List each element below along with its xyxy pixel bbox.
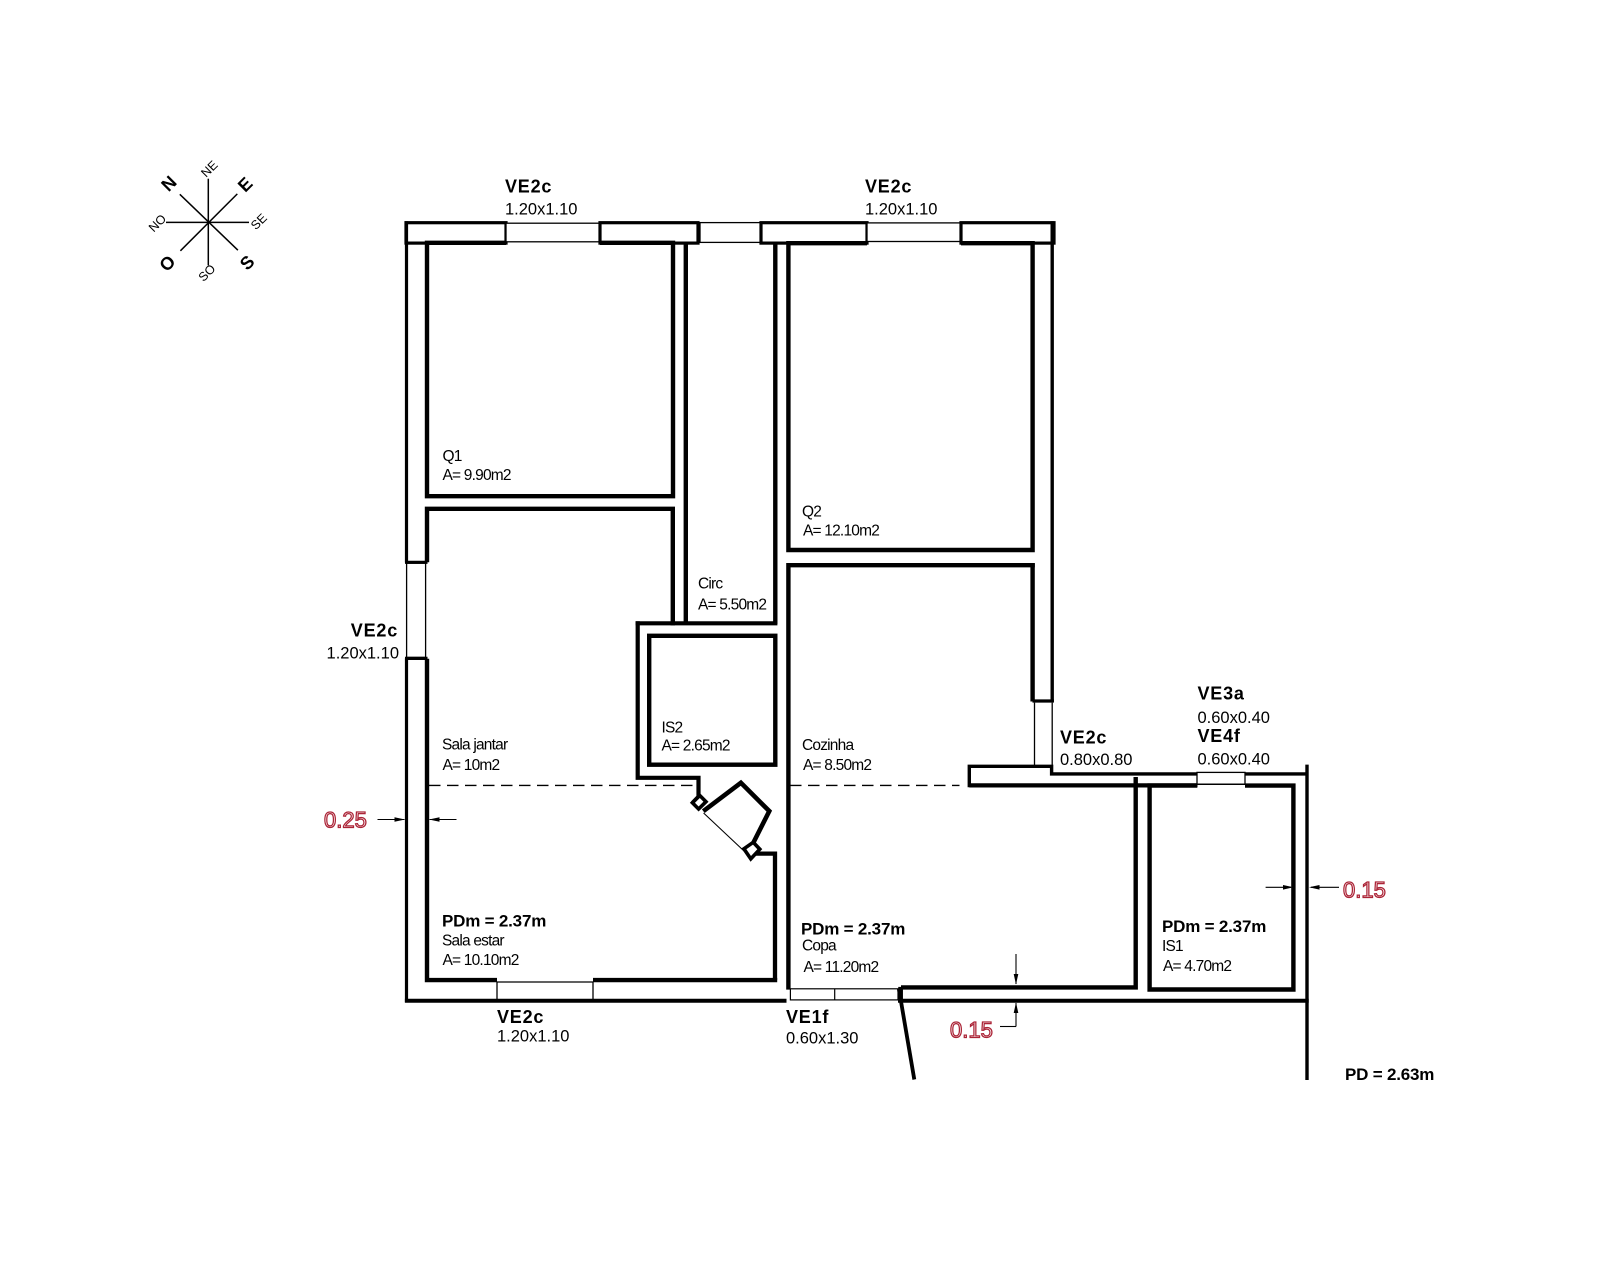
svg-text:0.60x0.40: 0.60x0.40 xyxy=(1198,751,1270,769)
svg-text:VE2c: VE2c xyxy=(497,1007,544,1027)
svg-text:0.25: 0.25 xyxy=(324,808,367,833)
svg-text:VE2c: VE2c xyxy=(1060,728,1107,748)
svg-text:PDm = 2.37m: PDm = 2.37m xyxy=(1162,917,1266,936)
svg-text:1.20x1.10: 1.20x1.10 xyxy=(865,201,937,219)
svg-text:A= 2.65m2: A= 2.65m2 xyxy=(662,738,730,755)
svg-text:A= 10m2: A= 10m2 xyxy=(443,757,500,774)
svg-text:IS1: IS1 xyxy=(1162,938,1183,955)
svg-text:VE2c: VE2c xyxy=(865,176,912,196)
svg-text:A= 9.90m2: A= 9.90m2 xyxy=(443,467,511,484)
svg-text:Q2: Q2 xyxy=(802,504,821,521)
svg-text:PD = 2.63m: PD = 2.63m xyxy=(1345,1065,1434,1084)
svg-text:VE3a: VE3a xyxy=(1198,684,1245,704)
svg-text:A= 11.20m2: A= 11.20m2 xyxy=(804,959,879,976)
svg-text:1.20x1.10: 1.20x1.10 xyxy=(327,644,399,662)
svg-text:VE4f: VE4f xyxy=(1198,726,1241,746)
svg-text:1.20x1.10: 1.20x1.10 xyxy=(497,1028,569,1046)
svg-text:Q1: Q1 xyxy=(443,448,462,465)
svg-text:VE2c: VE2c xyxy=(351,621,398,641)
svg-text:Copa: Copa xyxy=(802,938,837,955)
svg-text:IS2: IS2 xyxy=(662,720,683,737)
svg-text:Sala estar: Sala estar xyxy=(442,933,504,950)
svg-text:0.15: 0.15 xyxy=(1343,878,1386,903)
svg-text:A= 8.50m2: A= 8.50m2 xyxy=(803,757,871,774)
svg-text:0.15: 0.15 xyxy=(950,1018,993,1043)
svg-text:VE1f: VE1f xyxy=(786,1007,829,1027)
svg-text:A= 10.10m2: A= 10.10m2 xyxy=(443,952,519,969)
svg-text:Cozinha: Cozinha xyxy=(802,737,854,754)
svg-text:PDm = 2.37m: PDm = 2.37m xyxy=(442,912,546,931)
svg-text:0.80x0.80: 0.80x0.80 xyxy=(1060,751,1132,769)
svg-text:0.60x0.40: 0.60x0.40 xyxy=(1198,709,1270,727)
svg-text:A= 5.50m2: A= 5.50m2 xyxy=(698,596,766,613)
svg-text:A= 12.10m2: A= 12.10m2 xyxy=(803,523,879,540)
svg-text:PDm = 2.37m: PDm = 2.37m xyxy=(801,920,905,939)
svg-text:VE2c: VE2c xyxy=(505,176,552,196)
svg-text:A= 4.70m2: A= 4.70m2 xyxy=(1163,958,1231,975)
svg-text:1.20x1.10: 1.20x1.10 xyxy=(505,201,577,219)
svg-text:0.60x1.30: 0.60x1.30 xyxy=(786,1029,858,1047)
svg-text:Circ: Circ xyxy=(698,575,723,592)
svg-text:Sala jantar: Sala jantar xyxy=(442,737,508,754)
